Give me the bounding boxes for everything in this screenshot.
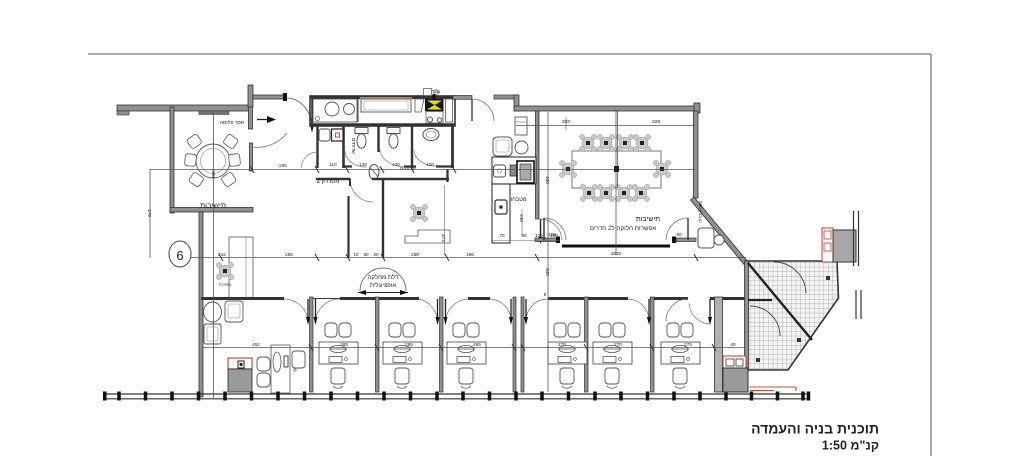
svg-text:דלת מחלקה: דלת מחלקה: [368, 273, 399, 281]
svg-text:שרותים: שרותים: [400, 166, 416, 172]
svg-text:100: 100: [548, 232, 556, 237]
svg-text:130: 130: [359, 162, 367, 167]
svg-text:120: 120: [392, 162, 400, 167]
svg-text:20: 20: [373, 252, 379, 257]
svg-text:אופציונלית: אופציונלית: [370, 281, 397, 289]
svg-text:320: 320: [652, 119, 660, 125]
svg-text:265: 265: [473, 342, 481, 347]
svg-text:קנ"מ 1:50: קנ"מ 1:50: [822, 439, 879, 453]
svg-text:270: 270: [614, 342, 622, 347]
svg-text:120: 120: [426, 162, 434, 167]
svg-text:212: 212: [218, 252, 226, 257]
svg-text:90: 90: [521, 233, 527, 238]
svg-text:110: 110: [329, 162, 337, 167]
svg-text:תישיבות: תישיבות: [200, 201, 226, 210]
svg-text:תישיבות: תישיבות: [636, 216, 660, 223]
svg-text:250: 250: [411, 252, 419, 257]
svg-text:אפשרות חלוקה ל2 חדרים: אפשרות חלוקה ל2 חדרים: [590, 224, 656, 232]
svg-text:170: 170: [147, 209, 152, 217]
svg-text:240: 240: [519, 214, 524, 222]
svg-text:1030: 1030: [611, 251, 622, 256]
svg-text:640: 640: [545, 268, 550, 276]
svg-text:452: 452: [252, 342, 260, 347]
svg-text:265: 265: [405, 342, 413, 347]
svg-text:300: 300: [211, 170, 216, 178]
svg-text:40: 40: [730, 342, 736, 347]
svg-text:320: 320: [562, 119, 570, 125]
svg-text:255: 255: [285, 252, 293, 257]
svg-text:180: 180: [466, 252, 474, 257]
svg-text:120: 120: [535, 233, 543, 238]
svg-text:265: 265: [340, 342, 348, 347]
svg-text:מסך פלזמה: מסך פלזמה: [220, 119, 245, 126]
svg-text:קו בניין 500: קו בניין 500: [698, 201, 703, 223]
svg-text:270: 270: [558, 342, 566, 347]
svg-text:10: 10: [353, 252, 359, 257]
svg-text:תוכנית בניה והעמדה: תוכנית בניה והעמדה: [751, 421, 879, 437]
svg-text:373: 373: [441, 234, 446, 242]
svg-text:6: 6: [176, 248, 183, 263]
svg-text:270: 270: [684, 342, 692, 347]
svg-text:מטבחון: מטבחון: [509, 197, 526, 203]
svg-text:90: 90: [363, 252, 369, 257]
svg-text:80: 80: [676, 232, 682, 237]
svg-text:שרותים: שרותים: [350, 138, 356, 154]
svg-text:430: 430: [545, 176, 550, 184]
svg-text:255: 255: [279, 163, 287, 168]
svg-text:מזכירה: מזכירה: [219, 282, 231, 287]
svg-text:70: 70: [499, 233, 505, 238]
